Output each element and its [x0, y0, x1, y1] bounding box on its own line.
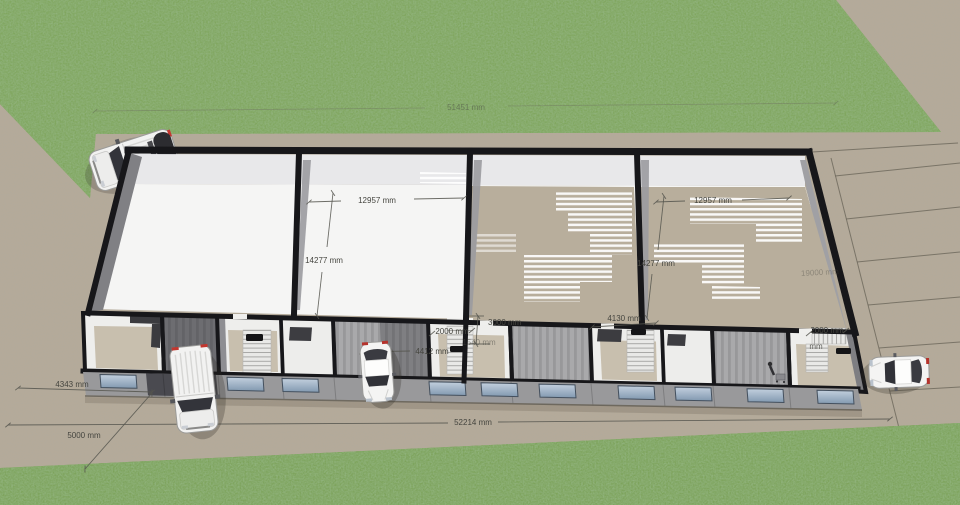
- dimension-label-stair-run: 1540 mm: [462, 338, 496, 347]
- grass-top: [0, 0, 941, 134]
- dimension-label-hall-right-width: 12957 mm: [694, 196, 732, 205]
- front-room-a: [281, 318, 335, 377]
- stair-lobby-3: [590, 326, 664, 385]
- divider-wall-2: [466, 153, 470, 319]
- 3d-model-viewport[interactable]: 51451 mm: [0, 0, 960, 505]
- end-unit-left: [83, 313, 164, 373]
- stair-lobby-4: [788, 328, 866, 392]
- dimension-label-lobby-a-unit-width: 4412 mm: [415, 347, 449, 356]
- dimension-label-hall-left-width: 12957 mm: [358, 196, 396, 205]
- staircase-1: [243, 330, 271, 374]
- dimension-label-hall-left-depth: 14277 mm: [305, 256, 343, 265]
- stair-lobby-1: [217, 316, 283, 375]
- dimension-label-lobby-c-width: 2000 mm: [810, 326, 844, 335]
- dimension-label-site-front-setback: 5000 mm: [67, 431, 101, 440]
- site-plan-scene: 51451 mm: [0, 0, 960, 505]
- dimension-label-entry-depth: 3000 mm: [488, 318, 522, 327]
- staircase-3: [627, 329, 654, 372]
- dimension-label-lobby-a-width: 2000 mm: [435, 327, 469, 336]
- dimension-label-site-front-width: 52214 mm: [454, 418, 492, 427]
- dimension-label-site-back: 51451 mm: [447, 103, 485, 112]
- dimension-label-lobby-c-partial: mm: [809, 342, 823, 351]
- dimension-label-lobby-b-width: 4130 mm: [607, 314, 641, 323]
- dimension-label-hall-right-depth: 14277 mm: [637, 259, 675, 268]
- front-room-b: [662, 327, 714, 385]
- dimension-label-site-left-side: 4343 mm: [55, 380, 89, 389]
